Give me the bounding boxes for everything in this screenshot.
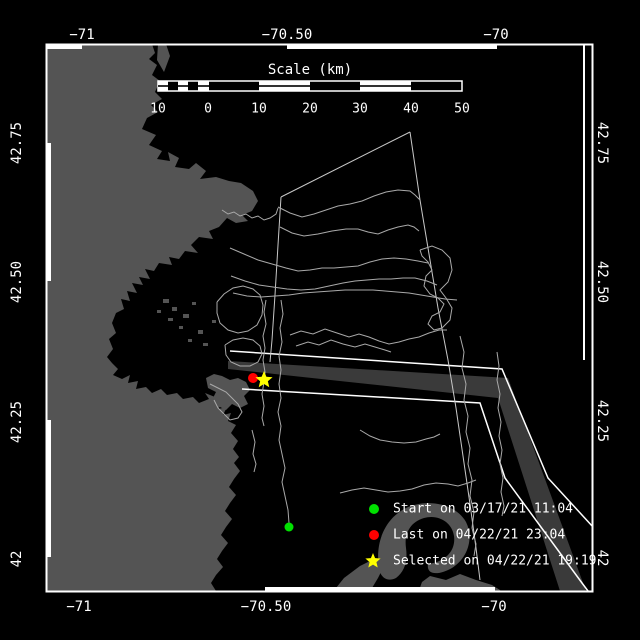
scale-bar-title: Scale (km) [268, 63, 352, 77]
axis-label-left-4225: 42.25 [10, 401, 24, 443]
axis-label-left-42: 42 [10, 551, 24, 568]
track-map-figure: −71 −70.50 −70 −71 −70.50 −70 42.75 42.5… [0, 0, 640, 640]
legend-label-selected: Selected on 04/22/21 19:19 [393, 555, 597, 568]
legend-label-last: Last on 04/22/21 23:04 [393, 529, 565, 542]
scale-tick-0: 0 [204, 103, 212, 116]
axis-label-top-7050: −70.50 [262, 28, 313, 42]
axis-label-top-70: −70 [483, 28, 508, 42]
scale-tick-10l: 10 [150, 103, 166, 116]
scale-tick-10: 10 [251, 103, 267, 116]
scale-tick-30: 30 [352, 103, 368, 116]
axis-label-bottom-7050: −70.50 [241, 600, 292, 614]
axis-label-right-4275: 42.75 [595, 122, 609, 164]
scale-tick-40: 40 [403, 103, 419, 116]
scale-tick-20: 20 [302, 103, 318, 116]
axis-label-left-4275: 42.75 [10, 122, 24, 164]
axis-label-right-4250: 42.50 [595, 261, 609, 303]
axis-label-bottom-71: −71 [66, 600, 91, 614]
start-position-marker[interactable] [285, 523, 294, 532]
map-canvas[interactable] [0, 0, 640, 640]
axis-label-left-4250: 42.50 [10, 261, 24, 303]
legend-label-start: Start on 03/17/21 11:04 [393, 503, 573, 516]
axis-label-top-71: −71 [69, 28, 94, 42]
axis-label-right-42: 42 [595, 550, 609, 567]
axis-label-bottom-70: −70 [481, 600, 506, 614]
axis-label-right-4225: 42.25 [595, 400, 609, 442]
legend-start-icon [369, 504, 379, 514]
scale-tick-50: 50 [454, 103, 470, 116]
scale-bar [158, 81, 462, 91]
legend-last-icon [369, 530, 379, 540]
